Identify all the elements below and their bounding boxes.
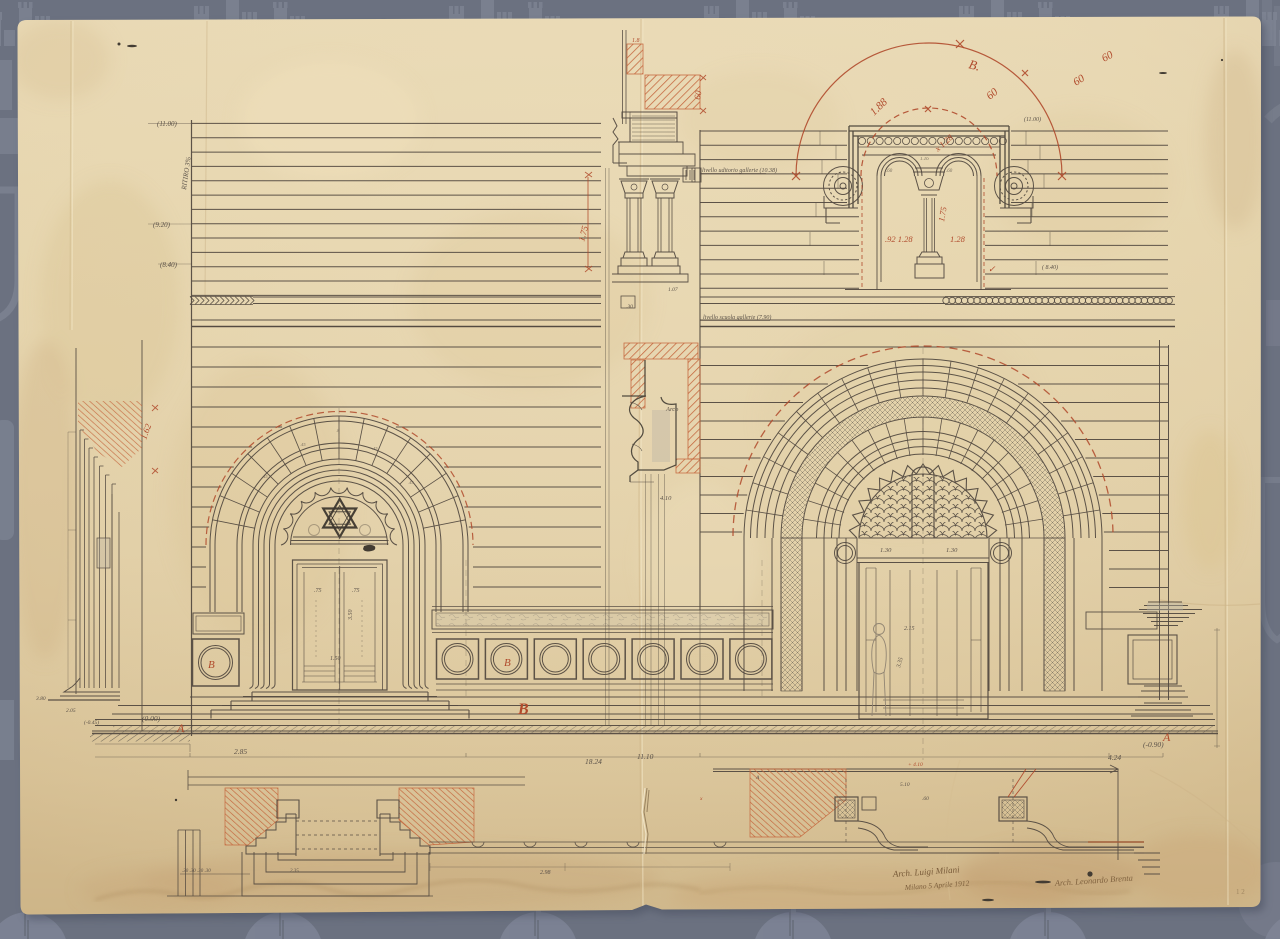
svg-text:1 2: 1 2 xyxy=(1236,888,1245,896)
svg-text:3.50: 3.50 xyxy=(348,610,354,622)
svg-text:.45: .45 xyxy=(408,480,414,485)
svg-text:5.10: 5.10 xyxy=(900,782,910,788)
svg-text:+ 4.10: + 4.10 xyxy=(908,761,923,768)
svg-text:✓: ✓ xyxy=(988,264,996,274)
svg-text:A: A xyxy=(1162,730,1171,744)
svg-text:4.10: 4.10 xyxy=(660,495,672,502)
svg-text:2.98: 2.98 xyxy=(540,870,551,876)
svg-text:1.07: 1.07 xyxy=(668,287,678,293)
svg-text:livello uditorio gallerie (10.: livello uditorio gallerie (10.38) xyxy=(702,167,777,174)
svg-text:A: A xyxy=(755,775,760,781)
svg-text:1.16: 1.16 xyxy=(920,157,929,162)
svg-text:.92 1.28: .92 1.28 xyxy=(885,234,913,244)
svg-text:.45: .45 xyxy=(262,474,268,479)
svg-text:2.85: 2.85 xyxy=(234,747,247,756)
svg-text:.60: .60 xyxy=(946,169,953,174)
svg-text:A: A xyxy=(176,721,185,735)
svg-text:B: B xyxy=(208,659,215,671)
svg-text:Arco: Arco xyxy=(665,406,679,413)
svg-text:.60: .60 xyxy=(886,169,893,174)
svg-text:11.10: 11.10 xyxy=(637,752,654,761)
svg-text:1.30: 1.30 xyxy=(946,547,958,554)
svg-text:.45: .45 xyxy=(300,442,306,447)
svg-text:B: B xyxy=(504,657,511,669)
svg-text:(11.00): (11.00) xyxy=(157,120,178,128)
svg-text:(-0.45): (-0.45) xyxy=(84,719,99,726)
svg-text:3.80: 3.80 xyxy=(35,696,46,702)
svg-text:.75: .75 xyxy=(314,588,322,594)
svg-text:1.28: 1.28 xyxy=(950,234,966,244)
svg-text:x: x xyxy=(699,796,703,802)
svg-text:.60: .60 xyxy=(922,796,929,802)
svg-text:.30: .30 xyxy=(626,304,633,310)
svg-text:( 8.40): ( 8.40) xyxy=(1042,264,1058,271)
svg-text:4.24: 4.24 xyxy=(1108,753,1121,762)
svg-text:2.05: 2.05 xyxy=(66,708,76,714)
svg-text:2.35: 2.35 xyxy=(290,869,299,874)
svg-text:(8.40): (8.40) xyxy=(160,261,178,269)
svg-text:.30 .30 .30 .30: .30 .30 .30 .30 xyxy=(182,869,211,874)
svg-text:(11.00): (11.00) xyxy=(1024,116,1041,123)
svg-text:(0.00): (0.00) xyxy=(142,714,161,723)
svg-text:18.24: 18.24 xyxy=(585,757,602,766)
svg-text:(-0.90): (-0.90) xyxy=(1143,740,1164,749)
svg-text:(9.20): (9.20) xyxy=(153,221,171,229)
svg-text:.45: .45 xyxy=(372,446,378,451)
svg-text:1.30: 1.30 xyxy=(880,547,892,554)
svg-text:1.8: 1.8 xyxy=(632,38,640,44)
svg-text:2.15: 2.15 xyxy=(904,626,915,632)
svg-text:livello scuola gallerie (7.90): livello scuola gallerie (7.90) xyxy=(703,314,771,321)
svg-text:.75: .75 xyxy=(352,588,360,594)
svg-text:B: B xyxy=(517,701,529,718)
